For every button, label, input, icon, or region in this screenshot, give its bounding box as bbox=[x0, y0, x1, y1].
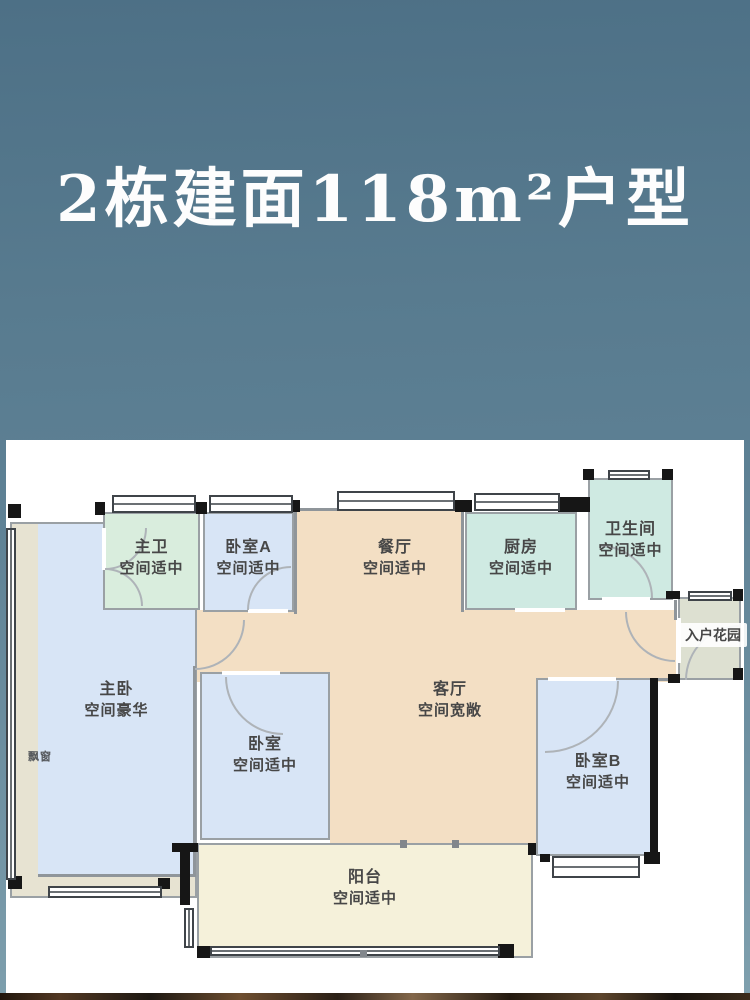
room-desc: 空间适中 bbox=[588, 541, 673, 561]
bay-window-glass bbox=[6, 528, 16, 880]
room-label-kitchen: 厨房 空间适中 bbox=[465, 538, 577, 578]
room-label-master-bath: 主卫 空间适中 bbox=[103, 538, 200, 578]
room-name: 厨房 bbox=[465, 538, 577, 559]
room-living bbox=[330, 610, 536, 845]
room-name: 主卫 bbox=[103, 538, 200, 559]
room-desc: 空间适中 bbox=[203, 559, 294, 579]
room-desc: 空间适中 bbox=[465, 559, 577, 579]
room-name: 卧室B bbox=[540, 752, 656, 773]
room-desc: 空间宽敞 bbox=[370, 701, 530, 721]
room-label-bedroom-center: 卧室 空间适中 bbox=[200, 735, 330, 775]
black-wall-segment bbox=[196, 502, 207, 514]
black-wall-segment bbox=[528, 843, 536, 855]
room-desc: 空间适中 bbox=[103, 559, 200, 579]
room-label-bay-window: 飘窗 bbox=[28, 748, 52, 764]
window bbox=[474, 493, 560, 511]
room-name: 卧室A bbox=[203, 538, 294, 559]
window bbox=[209, 495, 293, 513]
room-label-balcony: 阳台 空间适中 bbox=[280, 868, 450, 908]
room-desc: 空间适中 bbox=[280, 889, 450, 909]
room-desc: 空间豪华 bbox=[38, 701, 195, 721]
door-opening bbox=[515, 608, 565, 612]
black-wall-segment bbox=[172, 843, 198, 852]
window bbox=[552, 856, 640, 878]
next-photo-strip bbox=[0, 993, 750, 1000]
window bbox=[608, 470, 650, 480]
room-name: 卫生间 bbox=[588, 520, 673, 541]
black-wall-segment bbox=[666, 591, 680, 599]
room-desc: 空间适中 bbox=[540, 773, 656, 793]
black-wall-segment bbox=[498, 944, 514, 958]
black-wall-segment bbox=[197, 946, 210, 958]
slider-tick bbox=[360, 950, 367, 957]
door-opening bbox=[222, 671, 280, 675]
black-wall-segment bbox=[662, 469, 673, 480]
black-wall-segment bbox=[95, 502, 105, 515]
window bbox=[112, 495, 196, 513]
black-wall-segment bbox=[455, 500, 472, 512]
room-name: 客厅 bbox=[370, 680, 530, 701]
room-label-entry-garden: 入户花园 bbox=[679, 623, 747, 647]
black-wall-segment bbox=[8, 504, 21, 518]
black-wall-segment bbox=[558, 497, 590, 512]
slider-tick bbox=[452, 840, 459, 848]
window bbox=[688, 591, 732, 601]
black-wall-segment bbox=[668, 674, 680, 683]
wall-segment bbox=[38, 874, 196, 877]
room-label-master-bedroom: 主卧 空间豪华 bbox=[38, 680, 195, 720]
window bbox=[184, 908, 194, 948]
room-label-dining: 餐厅 空间适中 bbox=[330, 538, 460, 578]
room-name: 餐厅 bbox=[330, 538, 460, 559]
black-wall-segment bbox=[583, 469, 594, 480]
black-wall-segment bbox=[733, 589, 743, 601]
room-name: 卧室 bbox=[200, 735, 330, 756]
room-desc: 空间适中 bbox=[330, 559, 460, 579]
page-title: 2栋建面118m²户型 bbox=[0, 148, 750, 240]
wall-segment bbox=[461, 508, 464, 612]
black-wall-segment bbox=[644, 852, 660, 864]
room-label-bedroom-a: 卧室A 空间适中 bbox=[203, 538, 294, 578]
wall-segment bbox=[294, 508, 297, 614]
black-wall-segment bbox=[540, 854, 550, 862]
window bbox=[337, 491, 455, 511]
balcony-rail bbox=[210, 946, 500, 956]
black-wall-segment bbox=[180, 843, 190, 905]
room-label-living: 客厅 空间宽敞 bbox=[370, 680, 530, 720]
page: 2栋建面118m²户型 bbox=[0, 0, 750, 1000]
floorplan-panel: 主卫 空间适中 卧室A 空间适中 餐厅 空间适中 厨房 空间适中 卫生间 空间适… bbox=[6, 440, 744, 993]
room-label-bedroom-b: 卧室B 空间适中 bbox=[540, 752, 656, 792]
room-name: 主卧 bbox=[38, 680, 195, 701]
room-label-bathroom: 卫生间 空间适中 bbox=[588, 520, 673, 560]
slider-tick bbox=[400, 840, 407, 848]
window bbox=[48, 886, 162, 898]
room-name: 阳台 bbox=[280, 868, 450, 889]
room-desc: 空间适中 bbox=[200, 756, 330, 776]
